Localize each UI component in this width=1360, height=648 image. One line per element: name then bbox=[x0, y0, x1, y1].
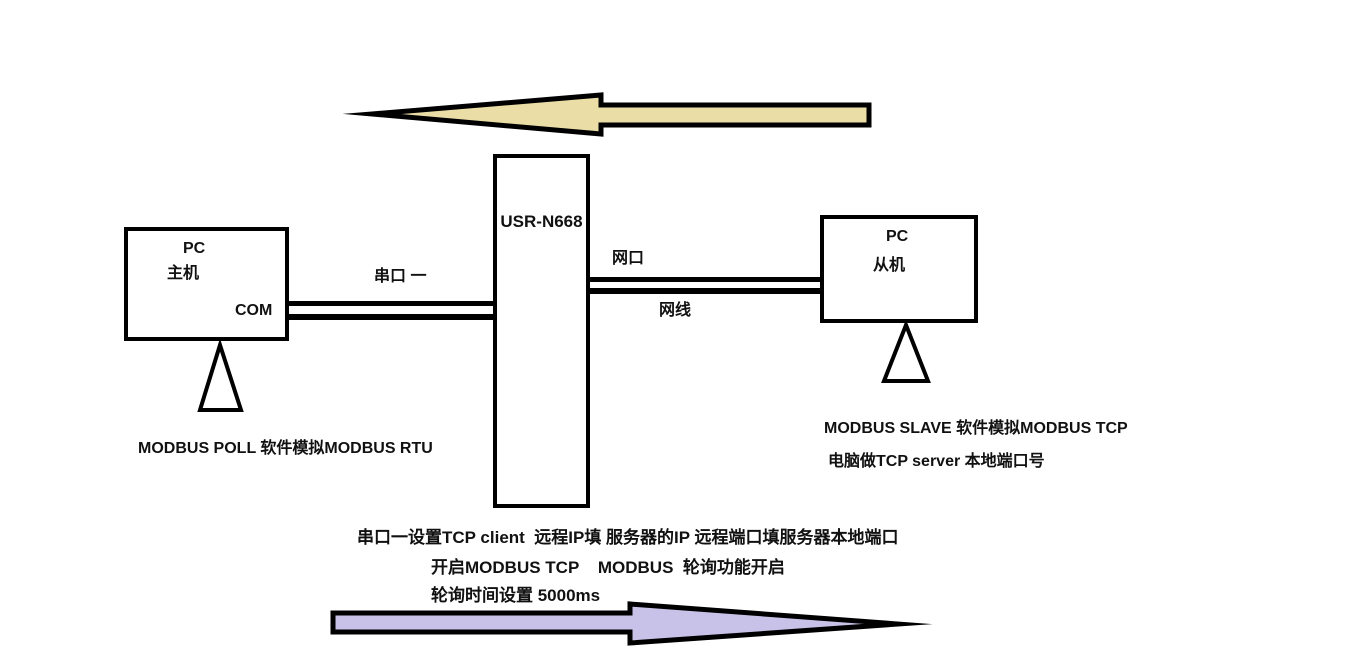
usr-n668-device-box bbox=[493, 154, 590, 508]
bottom-right-arrow bbox=[333, 604, 898, 643]
left-pc-com-port-label: COM bbox=[235, 302, 272, 320]
serial-cable-link bbox=[286, 301, 496, 320]
ethernet-cable-link bbox=[588, 277, 822, 294]
right-pc-role-label: 从机 bbox=[873, 257, 905, 275]
left-pc-title: PC bbox=[183, 240, 205, 258]
left-pc-stand-triangle bbox=[200, 345, 241, 410]
modbus-topology-diagram: USR-N668 PC 主机 COM PC 从机 串口 一 网口 网线 MODB… bbox=[0, 0, 1360, 648]
left-pc-box bbox=[124, 227, 289, 341]
serial-port-label: 串口 一 bbox=[374, 268, 426, 286]
left-note-modbus-poll: MODBUS POLL 软件模拟MODBUS RTU bbox=[138, 440, 433, 458]
bottom-note-line3: 轮询时间设置 5000ms bbox=[431, 586, 600, 606]
top-left-arrow bbox=[372, 95, 869, 134]
net-cable-label: 网线 bbox=[659, 302, 691, 320]
left-pc-role-label: 主机 bbox=[167, 265, 199, 283]
bottom-note-line2: 开启MODBUS TCP MODBUS 轮询功能开启 bbox=[431, 558, 785, 578]
usr-n668-label: USR-N668 bbox=[493, 212, 590, 232]
bottom-note-line1: 串口一设置TCP client 远程IP填 服务器的IP 远程端口填服务器本地端… bbox=[357, 528, 899, 548]
right-pc-stand-triangle bbox=[884, 325, 928, 381]
right-note-modbus-slave: MODBUS SLAVE 软件模拟MODBUS TCP bbox=[824, 420, 1128, 438]
right-note-tcp-server: 电脑做TCP server 本地端口号 bbox=[828, 453, 1045, 471]
net-port-label: 网口 bbox=[612, 250, 644, 268]
right-pc-title: PC bbox=[886, 228, 908, 246]
